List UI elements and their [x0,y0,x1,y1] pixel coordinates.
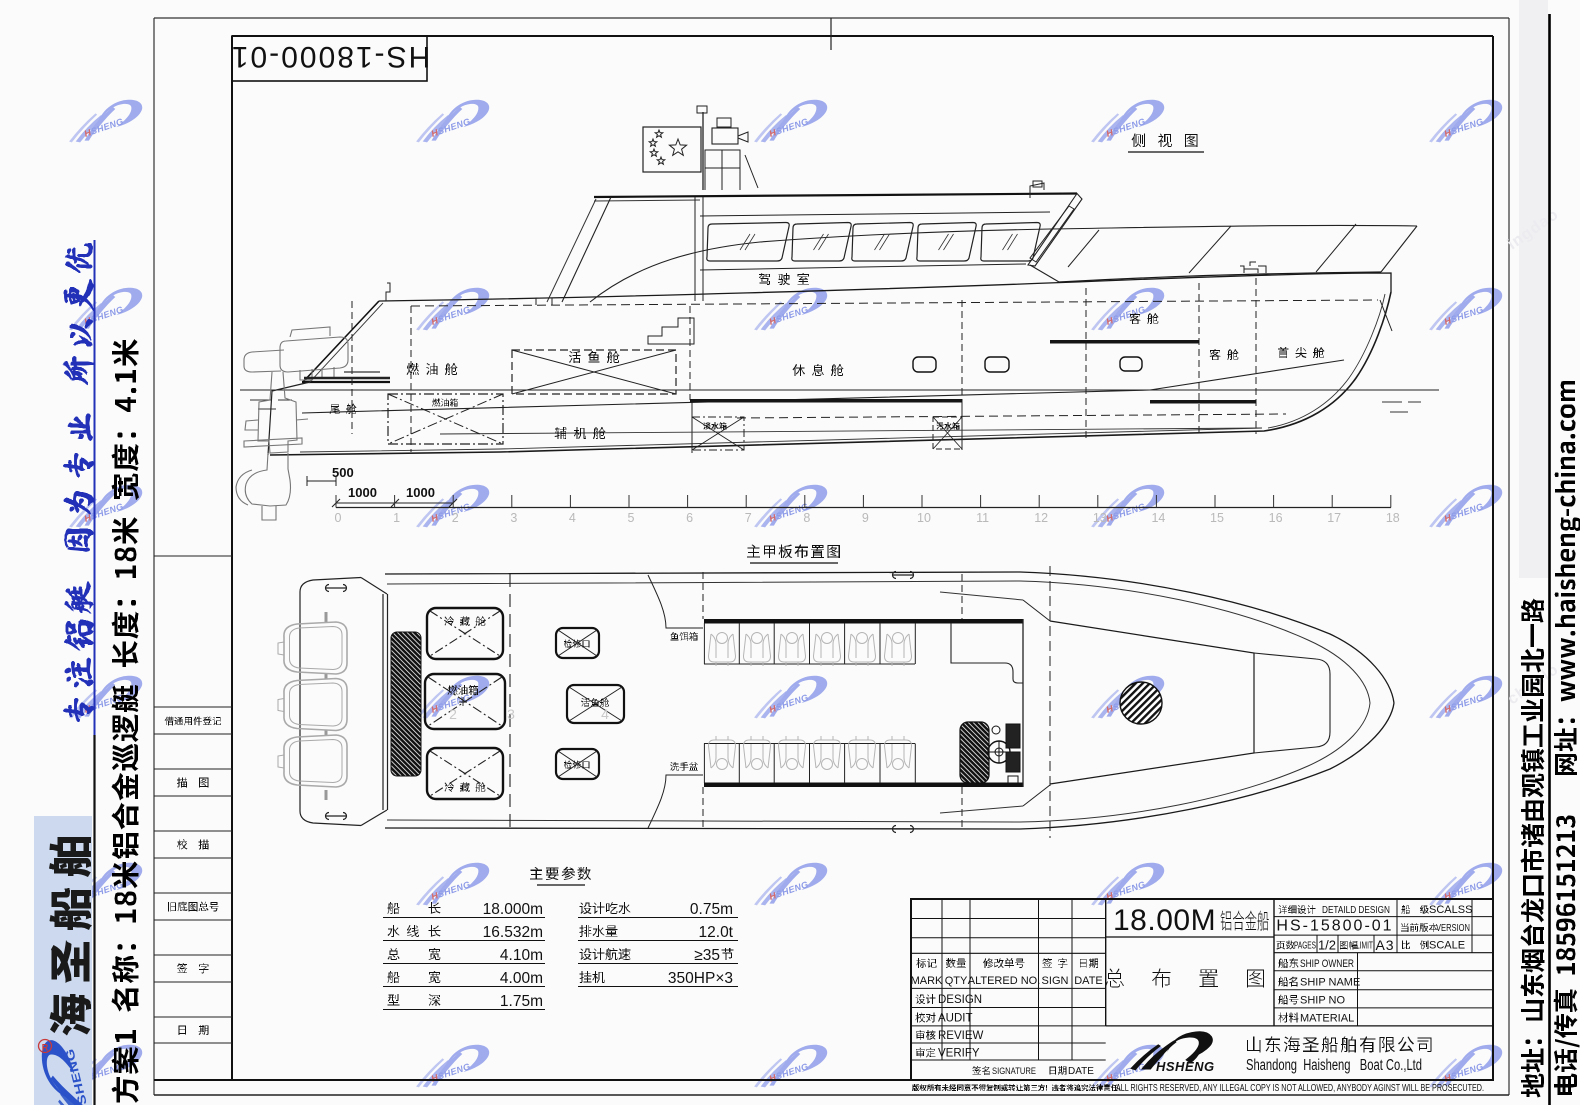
svg-text:0.75m: 0.75m [690,901,733,918]
svg-text:MATERIAL: MATERIAL [1300,1013,1354,1025]
svg-text:16: 16 [1269,511,1283,525]
svg-text:R: R [42,1043,49,1053]
svg-text:18.00M: 18.00M [1113,904,1216,937]
svg-text:SCALSS: SCALSS [1429,904,1472,916]
svg-text:1.75m: 1.75m [500,993,543,1010]
svg-text:PAGES: PAGES [1294,941,1316,952]
svg-text:500: 500 [332,465,354,480]
svg-text:1/2: 1/2 [1318,938,1336,953]
svg-text:4: 4 [569,511,576,525]
svg-text:HS-15800-01: HS-15800-01 [1276,918,1393,935]
svg-text:DESIGN: DESIGN [938,994,982,1006]
svg-text:ALL RIGHTS RESERVED, ANY ILLEG: ALL RIGHTS RESERVED, ANY ILLEGAL COPY IS… [1116,1083,1484,1094]
svg-text:9: 9 [862,511,869,525]
svg-text:Shandong Haisheng Boat Co.,: Shandong Haisheng Boat Co.,Ltd [1246,1057,1422,1074]
svg-text:1000: 1000 [348,485,377,500]
svg-text:VERSION: VERSION [1436,922,1470,934]
svg-text:14: 14 [1151,511,1165,525]
svg-text:SIGN: SIGN [1042,975,1069,987]
svg-text:0: 0 [335,511,342,525]
svg-text:15: 15 [1210,511,1224,525]
svg-text:3: 3 [510,511,517,525]
svg-text:4.10m: 4.10m [500,947,543,964]
svg-text:SIGNATURE: SIGNATURE [992,1066,1036,1077]
svg-text:LIMIT: LIMIT [1356,941,1373,952]
svg-text:4.00m: 4.00m [500,970,543,987]
svg-text:VERIFY: VERIFY [938,1048,980,1060]
svg-text:HSHENG: HSHENG [1156,1059,1215,1074]
svg-text:MARK: MARK [911,975,943,987]
svg-text:QTY: QTY [945,975,968,987]
svg-text:5: 5 [628,511,635,525]
svg-text:350HP×3: 350HP×3 [668,970,733,987]
svg-text:REVIEW: REVIEW [938,1030,984,1042]
svg-text:2: 2 [452,511,459,525]
svg-text:SHIP NO: SHIP NO [1300,995,1345,1007]
svg-text:8: 8 [803,511,810,525]
svg-text:6: 6 [686,511,693,525]
svg-text:DATE: DATE [1068,1066,1094,1077]
svg-text:SHIP OWNER: SHIP OWNER [1300,958,1354,970]
svg-text:4: 4 [601,706,609,722]
svg-text:DETAILD DESIGN: DETAILD DESIGN [1322,904,1390,916]
svg-text:16.532m: 16.532m [483,924,543,941]
svg-text:17: 17 [1327,511,1341,525]
svg-text:ALTERED NO.: ALTERED NO. [968,975,1041,987]
svg-text:1000: 1000 [406,485,435,500]
svg-text:18.000m: 18.000m [483,901,543,918]
svg-text:AUDIT: AUDIT [938,1013,973,1025]
svg-text:SHIP NAME: SHIP NAME [1300,977,1360,989]
svg-text:12.0t: 12.0t [699,924,734,941]
svg-text:≥35: ≥35 [694,947,720,964]
svg-text:11: 11 [976,511,989,525]
svg-text:3: 3 [507,706,515,722]
svg-text:A3: A3 [1375,937,1394,953]
svg-text:12: 12 [1034,511,1048,525]
svg-text:7: 7 [745,511,752,525]
svg-text:HS-18000-01: HS-18000-01 [230,40,430,73]
svg-text:SCALE: SCALE [1429,940,1465,952]
svg-text:18: 18 [1386,511,1400,525]
svg-text:1: 1 [393,511,400,525]
svg-text:2: 2 [449,706,457,722]
svg-text:DATE: DATE [1074,975,1103,987]
svg-text:10: 10 [917,511,931,525]
svg-text:13: 13 [1093,511,1107,525]
